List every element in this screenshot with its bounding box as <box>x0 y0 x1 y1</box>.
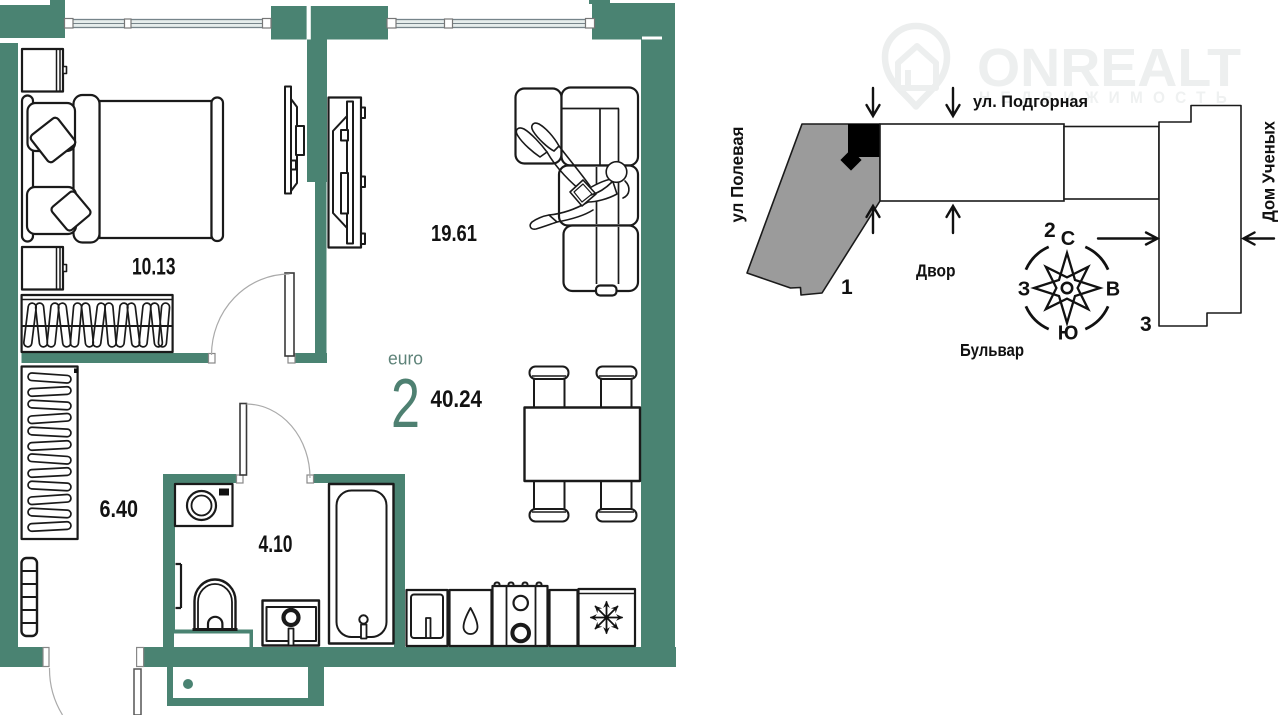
svg-text:Ю: Ю <box>1058 323 1079 345</box>
svg-text:ул. Подгорная: ул. Подгорная <box>973 92 1088 111</box>
svg-text:2: 2 <box>391 364 420 442</box>
svg-text:Двор: Двор <box>916 261 956 281</box>
svg-text:4.10: 4.10 <box>259 531 293 558</box>
svg-text:19.61: 19.61 <box>431 220 477 246</box>
svg-text:Дом Ученых: Дом Ученых <box>1259 121 1279 222</box>
svg-text:С: С <box>1061 228 1075 250</box>
svg-text:6.40: 6.40 <box>100 496 139 523</box>
svg-text:ул Полевая: ул Полевая <box>727 127 747 223</box>
svg-text:Бульвар: Бульвар <box>960 340 1024 360</box>
svg-text:1: 1 <box>841 276 853 299</box>
svg-text:2: 2 <box>1044 219 1056 242</box>
svg-text:В: В <box>1106 279 1120 301</box>
svg-text:40.24: 40.24 <box>431 386 483 413</box>
svg-text:3: 3 <box>1140 313 1152 336</box>
svg-text:З: З <box>1018 279 1031 301</box>
svg-text:10.13: 10.13 <box>132 254 176 281</box>
